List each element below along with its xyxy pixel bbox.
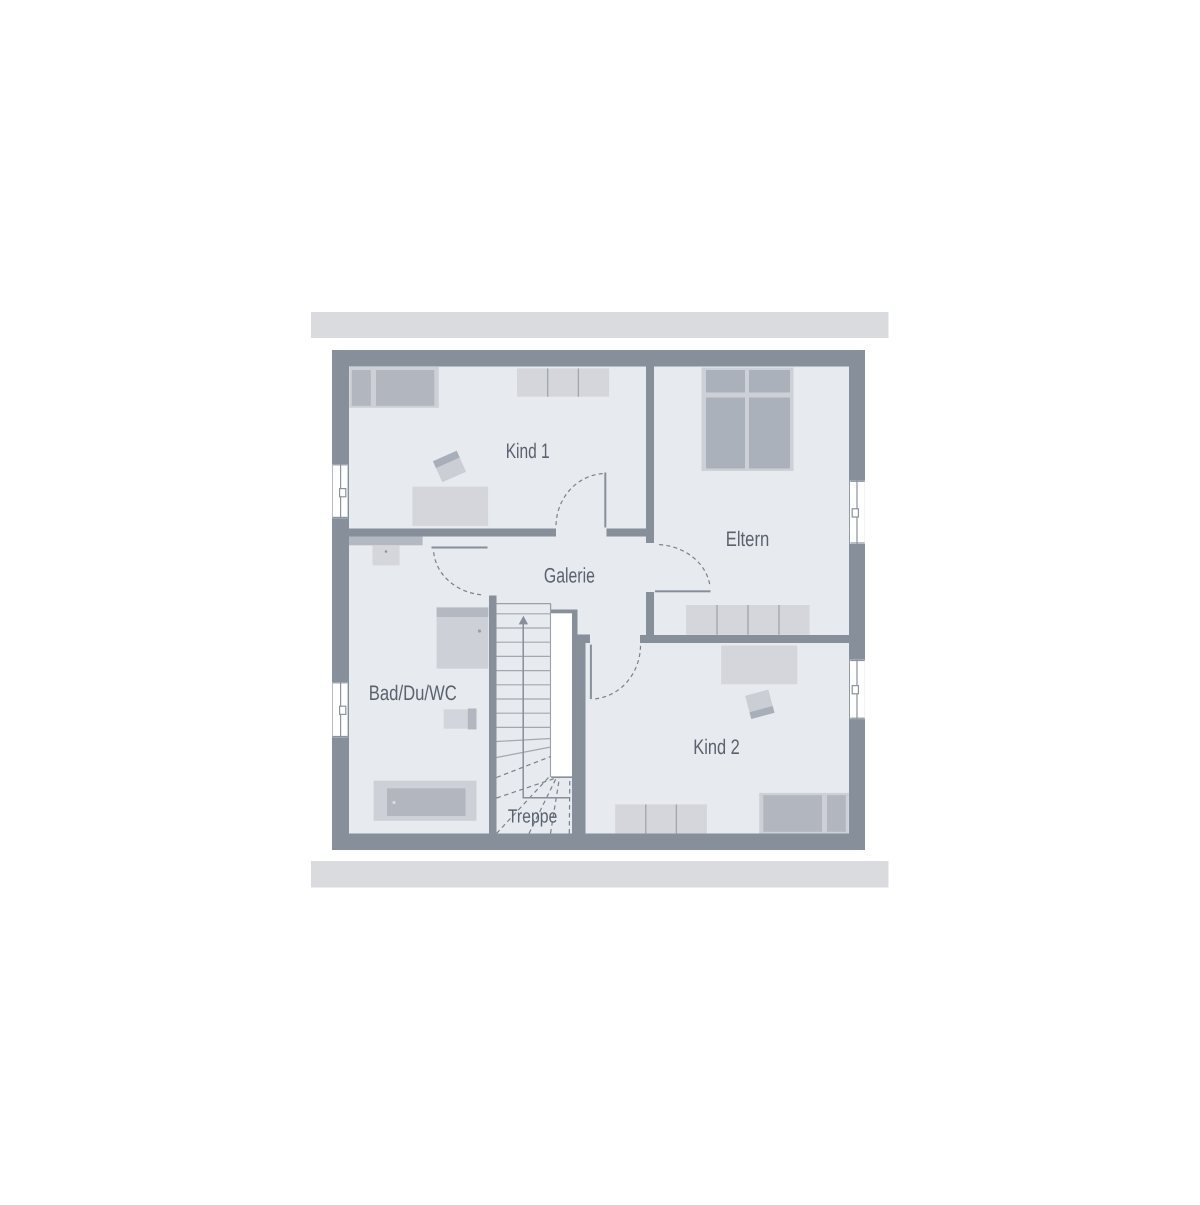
svg-text:Kind 2: Kind 2 — [693, 736, 740, 759]
svg-text:Galerie: Galerie — [544, 565, 595, 588]
svg-text:Treppe: Treppe — [508, 807, 558, 828]
svg-text:Kind 1: Kind 1 — [506, 440, 550, 463]
svg-text:Bad/Du/WC: Bad/Du/WC — [369, 682, 457, 705]
svg-text:Eltern: Eltern — [726, 528, 770, 551]
